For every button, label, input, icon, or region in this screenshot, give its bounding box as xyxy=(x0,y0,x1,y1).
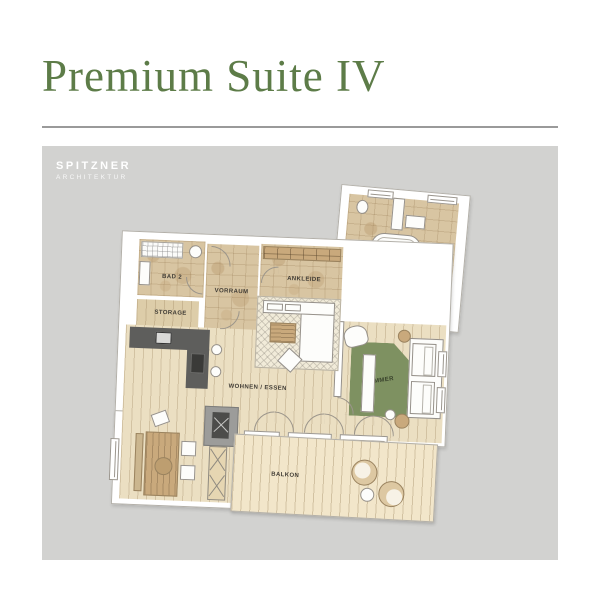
balcony-chair xyxy=(351,459,378,486)
balcony-chair xyxy=(378,480,405,507)
page-title: Premium Suite IV xyxy=(42,50,385,102)
room-label-vorraum: VORRAUM xyxy=(214,288,248,295)
sofa-seat xyxy=(299,314,335,363)
daybed xyxy=(361,354,376,412)
chimney-shaft xyxy=(207,446,227,501)
logo-name: SPITZNER xyxy=(56,161,131,172)
shower-bad2 xyxy=(141,241,184,259)
room-label-storage: STORAGE xyxy=(154,310,187,317)
sofa-cushion xyxy=(285,304,301,312)
window xyxy=(109,438,120,480)
floorplan-panel: SPITZNER ARCHITEKTUR xyxy=(42,146,558,560)
coffee-table xyxy=(269,322,296,343)
room-label-bad2: BAD 2 xyxy=(162,274,182,281)
kitchen-sink xyxy=(155,332,171,345)
sofa-cushion xyxy=(267,303,283,311)
dining-table xyxy=(143,431,180,496)
balcony: BALKON xyxy=(230,434,438,523)
wall-niche xyxy=(405,215,426,230)
balcony-table xyxy=(360,487,375,502)
architect-logo: SPITZNER ARCHITEKTUR xyxy=(56,161,131,182)
dining-chair xyxy=(181,441,197,457)
room-label-balkon: BALKON xyxy=(271,472,299,480)
window xyxy=(437,351,447,377)
floor-plan: BAD 1 xyxy=(104,180,469,530)
sink-bad2 xyxy=(139,261,151,285)
header-divider xyxy=(42,126,558,128)
cooktop xyxy=(190,353,205,374)
window xyxy=(436,387,446,413)
dining-chair xyxy=(180,465,196,481)
